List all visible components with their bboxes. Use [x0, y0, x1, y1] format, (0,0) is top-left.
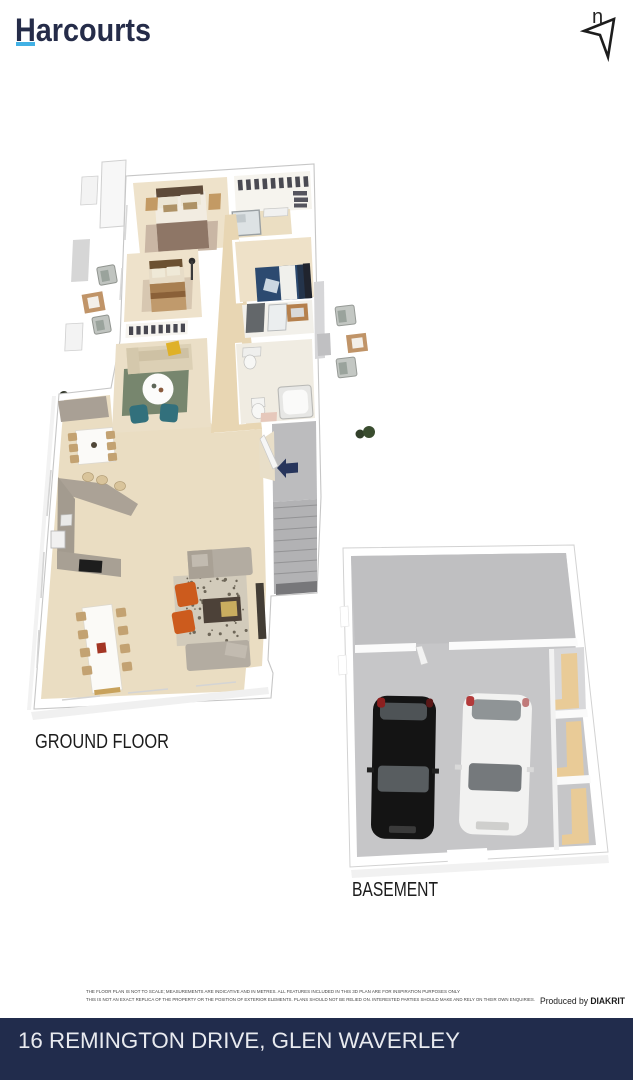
svg-text:16 REMINGTON DRIVE, GLEN WAVER: 16 REMINGTON DRIVE, GLEN WAVERLEY — [18, 1028, 460, 1053]
svg-text:THIS IS NOT AN EXACT REPLICA O: THIS IS NOT AN EXACT REPLICA OF THE PROP… — [86, 997, 535, 1002]
svg-text:GROUND FLOOR: GROUND FLOOR — [35, 731, 169, 753]
svg-text:BASEMENT: BASEMENT — [352, 879, 438, 901]
svg-text:THE FLOOR PLAN IS NOT TO SCALE: THE FLOOR PLAN IS NOT TO SCALE; MEASUREM… — [86, 989, 460, 994]
svg-text:Produced by DIAKRIT: Produced by DIAKRIT — [540, 996, 625, 1007]
svg-text:Harcourts: Harcourts — [15, 12, 151, 48]
